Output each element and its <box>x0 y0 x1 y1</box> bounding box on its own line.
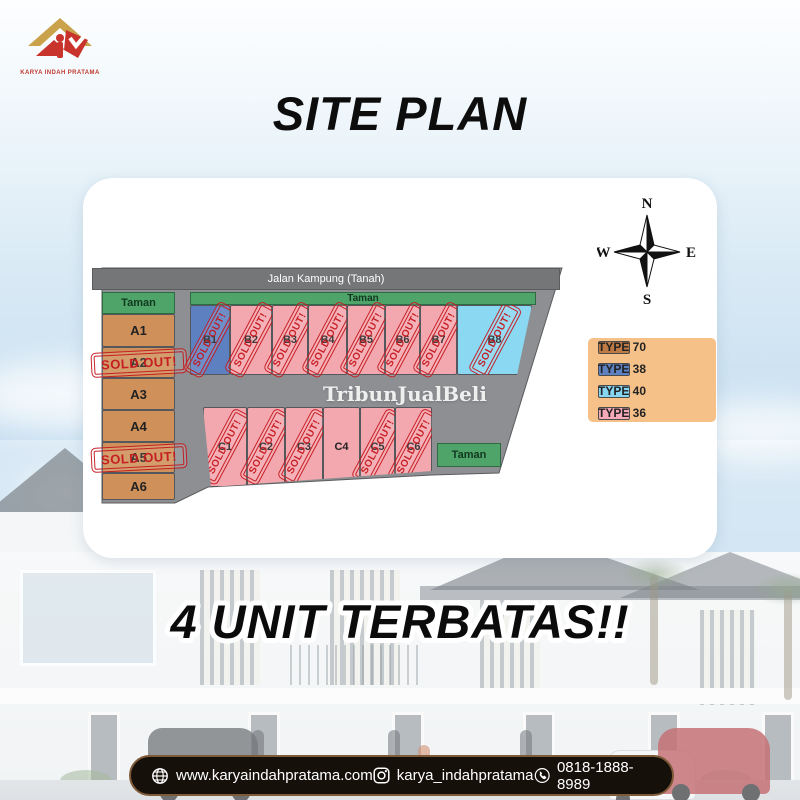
footer-website-text: www.karyaindahpratama.com <box>176 767 373 784</box>
lot-label: A3 <box>130 387 147 402</box>
company-logo: KARYA INDAH PRATAMA <box>14 12 106 76</box>
company-logo-mark <box>14 12 106 64</box>
type-legend: TYPE 70TYPE 38TYPE 40TYPE 36 <box>588 338 716 422</box>
globe-icon <box>151 767 169 785</box>
lot-C3: C3SOLD OUT! <box>285 407 323 487</box>
car-wheel <box>742 784 760 800</box>
siteplan-card: Jalan Kampung (Tanah) Taman Taman Taman … <box>83 178 717 558</box>
legend-label: TYPE 36 <box>598 406 646 420</box>
floor-divider <box>0 688 800 704</box>
page-title: SITE PLAN <box>0 88 800 140</box>
lot-A4: A4 <box>102 410 175 442</box>
door <box>88 712 120 796</box>
car-wheel <box>672 784 690 800</box>
tribun-watermark: TribunJualBeli <box>315 382 495 406</box>
sold-out-stamp: SOLD OUT! <box>467 301 522 379</box>
compass-s: S <box>643 292 651 308</box>
lot-label: A6 <box>130 479 147 494</box>
compass-n: N <box>642 196 653 212</box>
legend-label: TYPE 38 <box>598 362 646 376</box>
park-top: Taman <box>190 292 536 305</box>
lot-label: A1 <box>130 323 147 338</box>
footer-phone: 0818-1888-8989 <box>534 759 652 793</box>
flyer-canvas: KARYA INDAH PRATAMA SITE PLAN Jalan Kamp… <box>0 0 800 800</box>
footer-instagram: karya_indahpratama <box>373 767 534 784</box>
banner: 4 UNIT TERBATAS!! <box>0 580 800 670</box>
door <box>762 712 794 796</box>
park-left: Taman <box>102 292 175 314</box>
red-car <box>658 728 770 794</box>
lot-label: A4 <box>130 419 147 434</box>
lot-B7: B7SOLD OUT! <box>420 305 457 375</box>
footer-instagram-text: karya_indahpratama <box>397 767 534 784</box>
lot-A1: A1 <box>102 314 175 347</box>
legend-label: TYPE 70 <box>598 340 646 354</box>
lot-A2: A2SOLD OUT! <box>102 347 175 378</box>
instagram-icon <box>373 767 390 784</box>
footer-bar: www.karyaindahpratama.com karya_indahpra… <box>129 755 674 796</box>
company-name: KARYA INDAH PRATAMA <box>14 70 106 76</box>
whatsapp-icon <box>534 766 550 785</box>
sold-out-stamp: SOLD OUT! <box>90 443 187 473</box>
bush <box>700 770 752 792</box>
compass-rose: N E S W <box>597 192 697 312</box>
lot-A5: A5SOLD OUT! <box>102 442 175 473</box>
footer-phone-text: 0818-1888-8989 <box>557 759 652 793</box>
sold-out-stamp: SOLD OUT! <box>90 348 187 378</box>
lot-B1: B1SOLD OUT! <box>190 305 230 375</box>
lot-A3: A3 <box>102 378 175 410</box>
bush <box>60 770 112 792</box>
banner-text: 4 UNIT TERBATAS!! <box>169 595 629 648</box>
road-strip: Jalan Kampung (Tanah) <box>92 268 560 290</box>
lot-A6: A6 <box>102 473 175 500</box>
footer-website: www.karyaindahpratama.com <box>151 767 373 785</box>
legend-label: TYPE 40 <box>598 384 646 398</box>
park-right: Taman <box>437 443 501 467</box>
compass-e: E <box>686 245 696 261</box>
compass-w: W <box>597 245 611 261</box>
lot-label: C4 <box>334 441 348 453</box>
